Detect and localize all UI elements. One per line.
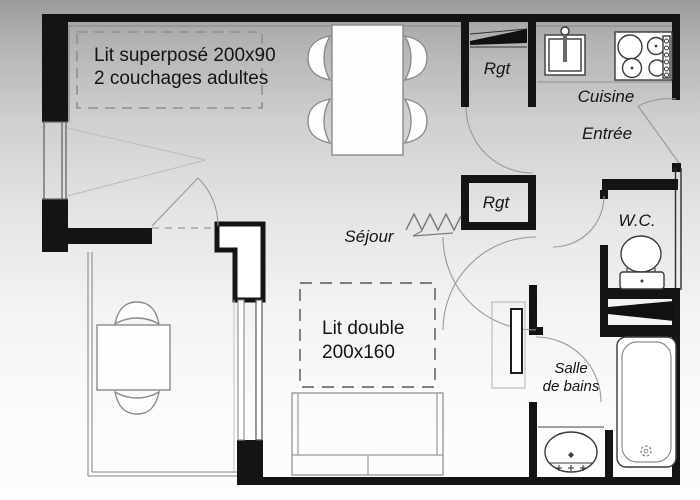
double-bed-label-line1: Lit double [322, 318, 404, 339]
double-bed-label-line2: 200x160 [322, 342, 395, 363]
living-room-label: Séjour [344, 227, 394, 246]
kitchen-label: Cuisine [578, 87, 635, 106]
cooktop [615, 32, 672, 80]
window [42, 122, 206, 199]
wc-shelf [608, 301, 674, 321]
bunk-room-label-line2: 2 couchages adultes [94, 68, 268, 89]
bathroom-label-line1: Salle [554, 360, 587, 377]
bathroom-label-line2: de bains [543, 378, 600, 395]
bathtub [617, 337, 676, 467]
entrance-label: Entrée [582, 124, 632, 143]
floor-plan-drawing: Lit superposé 200x90 2 couchages adultes… [0, 0, 700, 500]
wc-label: W.C. [618, 211, 655, 230]
storage-shelf [470, 29, 527, 47]
sofa [292, 393, 443, 475]
toilet [620, 236, 664, 289]
storage-top-label: Rgt [484, 59, 512, 78]
entrance-door [638, 99, 679, 163]
radiator [492, 302, 525, 388]
balcony-table [97, 325, 170, 390]
bunk-room-label-line1: Lit superposé 200x90 [94, 45, 276, 66]
radiator-zigzag-symbol [406, 214, 461, 236]
washbasin [538, 427, 604, 472]
dining-table [332, 25, 403, 155]
sliding-bay-door [238, 300, 262, 440]
floor-plan: Lit superposé 200x90 2 couchages adultes… [0, 0, 700, 500]
storage-middle-label: Rgt [483, 193, 511, 212]
kitchen-sink [545, 27, 585, 75]
